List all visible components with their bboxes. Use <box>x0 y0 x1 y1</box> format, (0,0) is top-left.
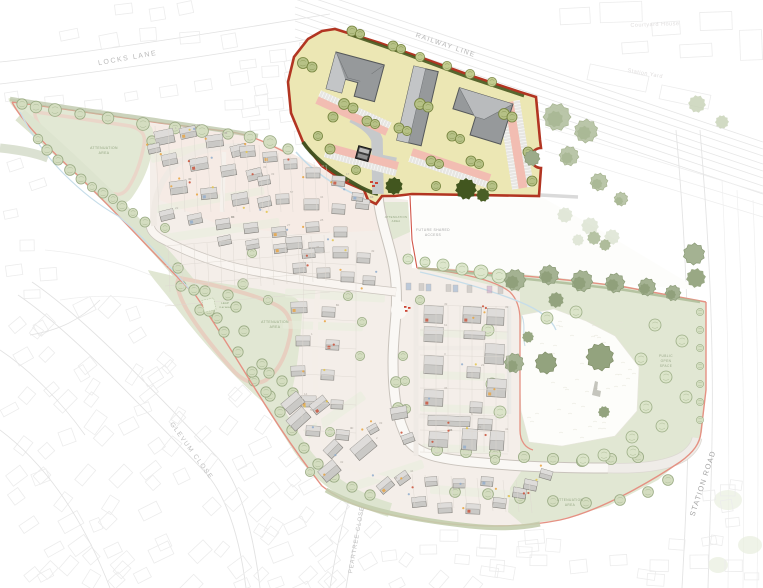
svg-text:44: 44 <box>410 469 414 473</box>
svg-text:48: 48 <box>394 476 398 480</box>
svg-text:27: 27 <box>287 223 291 227</box>
svg-text:ATTENUATION: ATTENUATION <box>90 146 118 150</box>
svg-text:OPEN: OPEN <box>661 359 672 363</box>
svg-text:ATTENUATION: ATTENUATION <box>557 498 584 502</box>
svg-text:32: 32 <box>340 460 344 464</box>
svg-text:17: 17 <box>346 172 350 176</box>
svg-text:AREA: AREA <box>270 325 281 329</box>
svg-text:46: 46 <box>316 245 320 249</box>
svg-text:46: 46 <box>224 131 228 135</box>
svg-text:14: 14 <box>449 428 453 432</box>
svg-text:41: 41 <box>505 427 509 431</box>
svg-text:PLAY AREA: PLAY AREA <box>219 306 231 309</box>
svg-text:AREA: AREA <box>565 503 576 507</box>
svg-text:ACCESS: ACCESS <box>425 233 442 237</box>
svg-text:28: 28 <box>320 218 324 222</box>
svg-text:LEAP: LEAP <box>221 301 229 305</box>
svg-text:36: 36 <box>444 386 448 390</box>
svg-text:33: 33 <box>379 421 383 425</box>
svg-text:49: 49 <box>444 302 448 306</box>
svg-text:ATTENUATION: ATTENUATION <box>261 320 289 324</box>
svg-text:PUBLIC: PUBLIC <box>659 354 673 358</box>
svg-text:54: 54 <box>310 408 314 412</box>
svg-text:49: 49 <box>371 249 375 253</box>
svg-text:32: 32 <box>321 164 325 168</box>
svg-text:33: 33 <box>263 165 267 169</box>
svg-text:SPACE: SPACE <box>660 364 673 368</box>
svg-text:22: 22 <box>481 363 485 367</box>
svg-text:22: 22 <box>175 206 179 210</box>
svg-text:AREA: AREA <box>99 151 110 155</box>
svg-text:FUTURE SHARED: FUTURE SHARED <box>416 228 450 232</box>
svg-text:28: 28 <box>197 123 201 127</box>
svg-text:AREA: AREA <box>392 219 401 223</box>
svg-text:14: 14 <box>304 392 308 396</box>
svg-text:57: 57 <box>290 190 294 194</box>
svg-text:61: 61 <box>444 323 448 327</box>
svg-text:33: 33 <box>271 172 275 176</box>
svg-text:34: 34 <box>320 195 324 199</box>
svg-text:40: 40 <box>350 426 354 430</box>
svg-text:10: 10 <box>370 195 374 199</box>
svg-text:39: 39 <box>505 305 509 309</box>
svg-text:26: 26 <box>231 215 235 219</box>
svg-text:23: 23 <box>478 425 482 429</box>
svg-text:40: 40 <box>188 177 192 181</box>
